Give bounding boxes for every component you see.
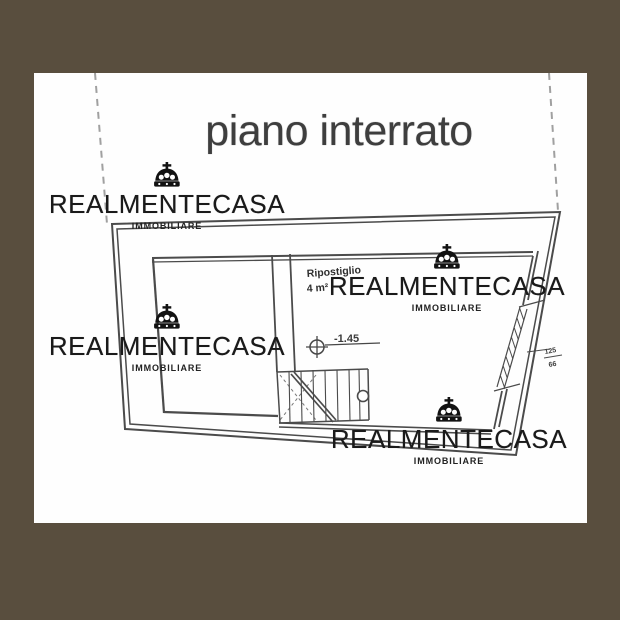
watermark-sub: IMMOBILIARE [132,363,202,373]
watermark-sub: IMMOBILIARE [412,303,482,313]
watermark-brand: REALMENTECASA [331,426,567,452]
watermark-brand: REALMENTECASA [329,273,565,299]
crown-icon [431,243,463,272]
watermark-brand: REALMENTECASA [49,333,285,359]
frame-top [0,0,620,73]
watermark: REALMENTECASA IMMOBILIARE [331,396,567,466]
window-height-label: 66 [548,361,557,369]
window-width-label: 125 [544,347,557,356]
watermark: REALMENTECASA IMMOBILIARE [329,243,565,313]
crown-icon [151,161,183,190]
window-hatch [497,307,527,389]
watermark-sub: IMMOBILIARE [414,456,484,466]
page-title: piano interrato [205,108,472,155]
level-label: -1.45 [334,333,359,345]
watermark: REALMENTECASA IMMOBILIARE [49,161,285,231]
watermark: REALMENTECASA IMMOBILIARE [49,303,285,373]
screenshot-root: Ripostiglio 4 m² -1.45 125 66 piano inte… [0,0,620,620]
crown-icon [433,396,465,425]
watermark-sub: IMMOBILIARE [132,221,202,231]
crown-icon [151,303,183,332]
watermark-brand: REALMENTECASA [49,191,285,217]
stair-slope-line [291,374,333,422]
room-area-label: 4 m² [306,281,329,295]
frame-bottom [0,523,620,620]
